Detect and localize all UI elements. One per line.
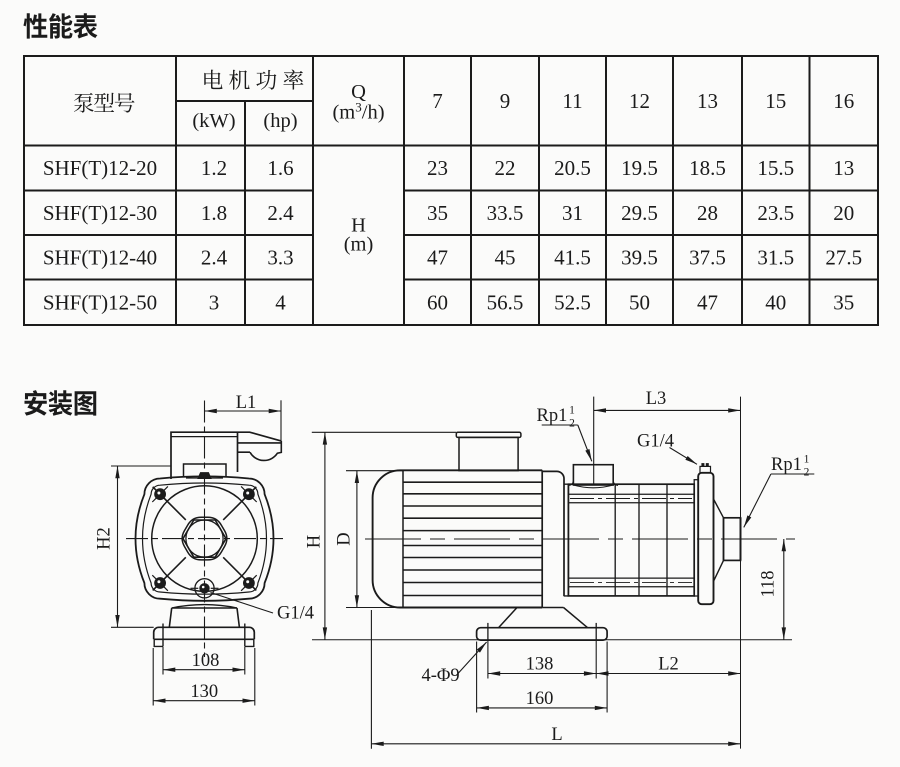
svg-text:Rp1: Rp1 [537,406,568,426]
svg-text:L2: L2 [658,655,679,675]
svg-text:45: 45 [495,245,516,269]
svg-text:27.5: 27.5 [825,245,862,269]
svg-text:31: 31 [562,201,583,225]
svg-text:(m): (m) [344,234,374,256]
svg-text:2: 2 [569,418,575,430]
svg-text:9: 9 [500,89,511,113]
svg-text:(kW): (kW) [192,110,235,132]
svg-text:40: 40 [765,290,786,314]
svg-text:108: 108 [192,651,220,671]
svg-text:4: 4 [275,290,286,314]
svg-text:D: D [335,532,355,545]
svg-text:12: 12 [629,89,650,113]
svg-text:29.5: 29.5 [621,201,658,225]
svg-text:H2: H2 [95,527,115,550]
svg-text:3: 3 [209,290,220,314]
svg-text:1: 1 [804,454,810,466]
svg-text:1.8: 1.8 [201,201,227,225]
svg-text:130: 130 [190,682,218,702]
svg-text:41.5: 41.5 [554,245,591,269]
svg-text:18.5: 18.5 [689,156,726,180]
svg-text:11: 11 [562,89,582,113]
svg-text:7: 7 [432,89,443,113]
svg-text:35: 35 [427,201,448,225]
svg-text:2: 2 [804,467,810,479]
svg-text:23: 23 [427,156,448,180]
svg-text:20: 20 [833,201,854,225]
svg-text:31.5: 31.5 [757,245,794,269]
svg-text:H: H [305,535,325,548]
svg-text:SHF(T)12-30: SHF(T)12-30 [43,201,157,225]
svg-text:SHF(T)12-40: SHF(T)12-40 [43,245,157,269]
svg-text:56.5: 56.5 [487,290,524,314]
svg-text:47: 47 [427,245,448,269]
svg-text:22: 22 [495,156,516,180]
svg-text:1.6: 1.6 [267,156,293,180]
svg-text:118: 118 [759,570,779,597]
svg-text:20.5: 20.5 [554,156,591,180]
svg-text:35: 35 [833,290,854,314]
svg-text:60: 60 [427,290,448,314]
svg-text:15.5: 15.5 [757,156,794,180]
svg-text:L3: L3 [646,389,667,409]
svg-text:4-Φ9: 4-Φ9 [422,666,460,686]
svg-text:2.4: 2.4 [201,245,228,269]
svg-text:39.5: 39.5 [621,245,658,269]
svg-text:28: 28 [697,201,718,225]
svg-text:G1/4: G1/4 [277,604,314,624]
svg-text:50: 50 [629,290,650,314]
svg-text:37.5: 37.5 [689,245,726,269]
svg-text:(m3/h): (m3/h) [332,100,384,124]
svg-text:SHF(T)12-20: SHF(T)12-20 [43,156,157,180]
svg-text:138: 138 [526,655,554,675]
svg-text:160: 160 [526,689,554,709]
svg-text:3.3: 3.3 [267,245,293,269]
svg-text:SHF(T)12-50: SHF(T)12-50 [43,290,157,314]
svg-text:L: L [551,725,562,745]
svg-text:47: 47 [697,290,718,314]
svg-text:13: 13 [697,89,718,113]
svg-text:1: 1 [569,405,575,417]
svg-text:19.5: 19.5 [621,156,658,180]
svg-text:23.5: 23.5 [757,201,794,225]
svg-text:33.5: 33.5 [487,201,524,225]
svg-text:16: 16 [833,89,854,113]
svg-text:Rp1: Rp1 [771,455,802,475]
svg-text:G1/4: G1/4 [637,432,674,452]
svg-text:15: 15 [765,89,786,113]
svg-text:1.2: 1.2 [201,156,227,180]
svg-text:2.4: 2.4 [267,201,294,225]
svg-text:52.5: 52.5 [554,290,591,314]
svg-text:(hp): (hp) [263,110,297,132]
svg-text:L1: L1 [236,393,257,413]
svg-text:13: 13 [833,156,854,180]
